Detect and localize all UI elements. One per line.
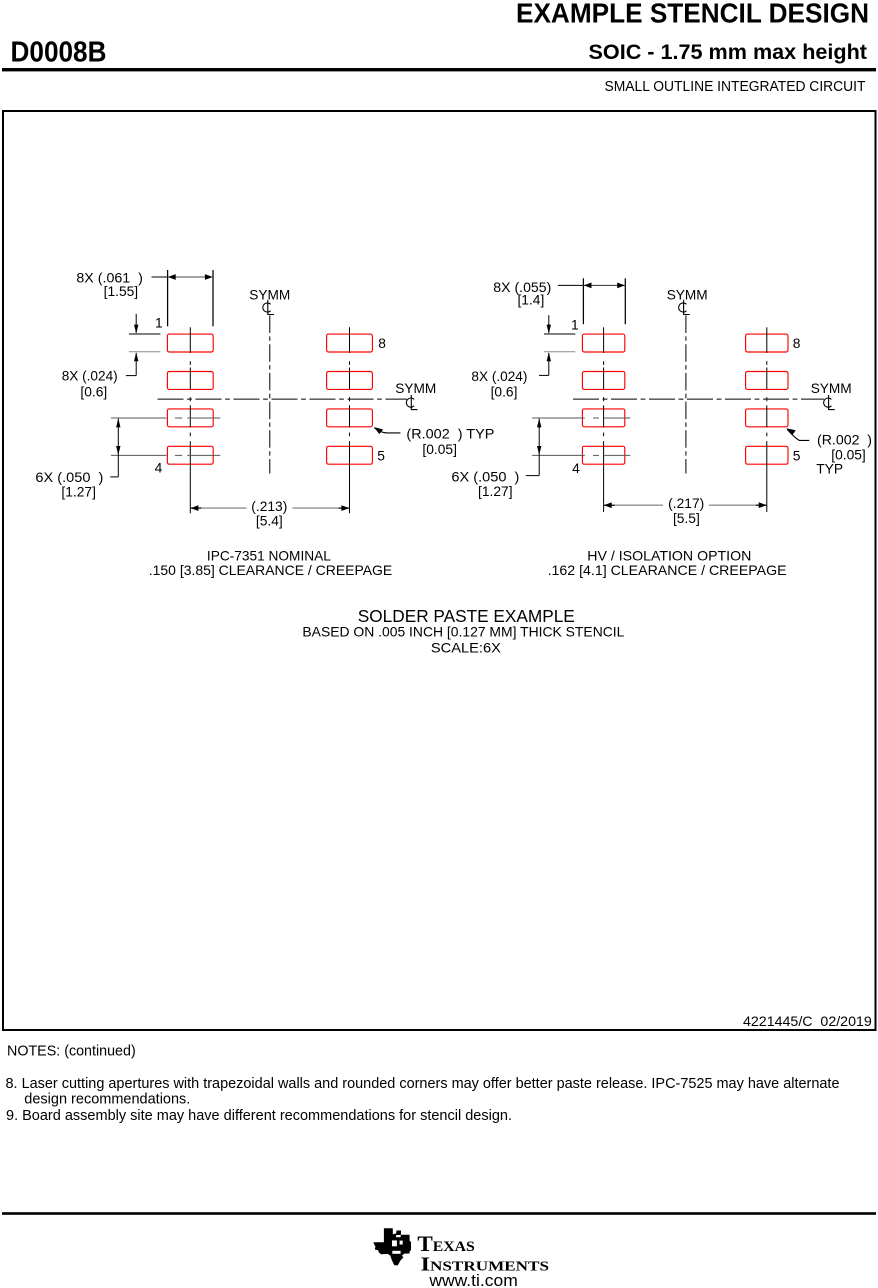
svg-text:[1.55]: [1.55] — [104, 284, 139, 299]
svg-text:[1.4]: [1.4] — [517, 293, 544, 308]
svg-text:8X (.024): 8X (.024) — [62, 368, 118, 383]
svg-text:8: 8 — [793, 336, 801, 351]
svg-text:8: 8 — [378, 336, 386, 351]
svg-text:SYMM: SYMM — [395, 381, 436, 396]
svg-text:D0008B: D0008B — [11, 36, 107, 68]
svg-text:6X (.050 ): 6X (.050 ) — [451, 470, 519, 485]
svg-text:6X (.050 ): 6X (.050 ) — [35, 470, 103, 485]
svg-text:TYP: TYP — [816, 462, 843, 477]
svg-text:5: 5 — [793, 448, 801, 463]
svg-text:SYMM: SYMM — [811, 381, 852, 396]
svg-text:[0.6]: [0.6] — [491, 384, 518, 399]
svg-text:4221445/C 02/2019: 4221445/C 02/2019 — [743, 1013, 872, 1029]
svg-text:EXAMPLE STENCIL DESIGN: EXAMPLE STENCIL DESIGN — [516, 0, 869, 29]
svg-text:SOIC - 1.75 mm max height: SOIC - 1.75 mm max height — [589, 40, 868, 64]
svg-text:5: 5 — [377, 448, 385, 463]
svg-text:4: 4 — [572, 461, 580, 476]
svg-text:[0.6]: [0.6] — [80, 384, 107, 399]
svg-text:NOTES: (continued): NOTES: (continued) — [7, 1044, 136, 1060]
svg-text:[0.05]: [0.05] — [422, 442, 457, 457]
svg-text:[5.5]: [5.5] — [673, 511, 700, 526]
svg-text:(R.002 ): (R.002 ) — [817, 432, 872, 447]
svg-text:Texas: Texas — [417, 1231, 474, 1256]
svg-text:9. Board assembly site may hav: 9. Board assembly site may have differen… — [6, 1108, 512, 1124]
svg-text:.150 [3.85] CLEARANCE / CREEPA: .150 [3.85] CLEARANCE / CREEPAGE — [149, 562, 393, 578]
svg-text:4: 4 — [155, 461, 163, 476]
svg-text:[0.05]: [0.05] — [831, 447, 866, 462]
svg-text:(.217): (.217) — [668, 496, 704, 511]
svg-text:.162 [4.1] CLEARANCE / CREEPAG: .162 [4.1] CLEARANCE / CREEPAGE — [548, 562, 787, 578]
svg-text:[1.27]: [1.27] — [61, 485, 96, 500]
svg-text:1: 1 — [571, 318, 579, 333]
svg-text:[1.27]: [1.27] — [478, 484, 513, 499]
svg-text:8. Laser cutting apertures wit: 8. Laser cutting apertures with trapezoi… — [6, 1076, 840, 1092]
svg-text:(.213): (.213) — [251, 499, 287, 514]
svg-text:BASED ON .005 INCH [0.127 MM]: BASED ON .005 INCH [0.127 MM] THICK STEN… — [302, 623, 624, 639]
svg-text:1: 1 — [155, 315, 163, 330]
svg-text:SYMM: SYMM — [249, 287, 290, 302]
svg-text:SCALE:6X: SCALE:6X — [431, 640, 502, 656]
svg-text:[5.4]: [5.4] — [256, 514, 283, 529]
svg-text:SYMM: SYMM — [667, 287, 708, 302]
svg-text:8X (.024): 8X (.024) — [471, 369, 527, 384]
svg-text:design recommendations.: design recommendations. — [24, 1092, 190, 1108]
svg-text:www.ti.com: www.ti.com — [428, 1271, 518, 1288]
svg-text:(R.002 ) TYP: (R.002 ) TYP — [406, 426, 494, 441]
svg-text:SMALL OUTLINE INTEGRATED CIRCU: SMALL OUTLINE INTEGRATED CIRCUIT — [605, 78, 866, 95]
